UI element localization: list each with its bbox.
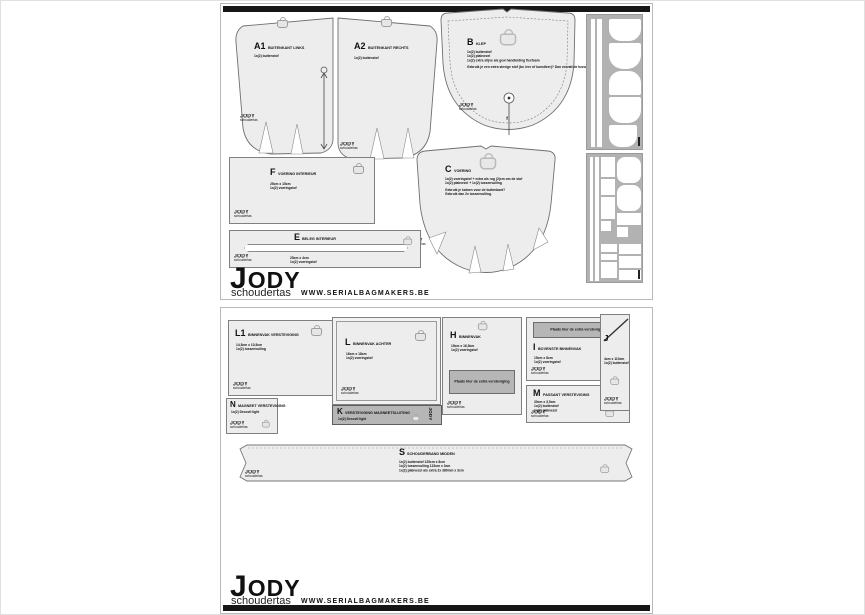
piece-a2-specs: 1x(2) buitenstof — [354, 56, 379, 60]
piece-l: L BINNENVAK ACHTER 16cm x 18cm 1x(2) voe… — [332, 317, 441, 405]
jody-mini-logo: JODY schoudertas — [234, 210, 252, 218]
layout-piece — [601, 244, 617, 252]
piece-a2-name: BUITENKANT RECHTS — [368, 47, 409, 51]
piece-a1-specs: 1x(2) buitenstof — [254, 54, 279, 58]
layout-piece — [601, 197, 615, 219]
jody-logo-sub: schoudertas — [231, 287, 291, 299]
piece-k: K VERSTEVIGING MAGNEETSLUITING 1x(2) Dec… — [332, 405, 442, 425]
layout-caption — [638, 270, 640, 279]
piece-h: H BINNENVAK 15cm x 16,5cm 1x(2) voerings… — [442, 317, 522, 415]
piece-a1-label: A1 BUITENKANT LINKS — [254, 42, 326, 51]
layout-strip — [590, 157, 593, 281]
layout-strip — [595, 157, 599, 281]
piece-c-specs: 1x(2) voeringstof + extra als rug (2)cm … — [445, 177, 522, 197]
layout-piece — [617, 227, 628, 237]
piece-n: N MAGNEET VERSTEVIGING 1x(2) Decovil lig… — [226, 398, 278, 434]
layout-piece — [601, 179, 615, 195]
jody-mini-logo: JODY schoudertas — [245, 470, 263, 478]
piece-l1-code: L1 — [235, 329, 246, 338]
layout-piece — [609, 71, 641, 95]
piece-k-specs: 1x(2) Decovil light — [338, 417, 366, 421]
brand-bag-icon — [500, 29, 520, 47]
piece-e: E BELEG INTERIEUR 25cm x 4cm 1x(2) voeri… — [229, 230, 421, 268]
piece-j-specs: 4cm x 110cm 1x(2) buitenstof — [604, 357, 629, 366]
piece-h-name: BINNENVAK — [459, 336, 481, 340]
piece-k-name: VERSTEVIGING MAGNEETSLUITING — [345, 412, 410, 416]
brand-bag-icon — [610, 376, 620, 386]
piece-n-label: N MAGNEET VERSTEVIGING — [230, 401, 314, 409]
layout-piece — [617, 213, 641, 225]
jody-mini-logo: JODY schoudertas — [341, 387, 359, 395]
piece-s-code: S — [399, 448, 405, 457]
jody-mini-logo: JODY schoudertas — [459, 103, 477, 111]
piece-m-name: PASSANT VERSTEVIGING — [543, 394, 589, 398]
layout-piece — [617, 157, 641, 183]
piece-b-code: B — [467, 38, 474, 47]
brand-bag-icon — [600, 464, 610, 474]
piece-m-code: M — [533, 389, 541, 398]
jody-mini-logo: JODY schoudertas — [604, 397, 622, 405]
jody-mini-logo: JODY schoudertas — [531, 410, 549, 418]
piece-i-code: I — [533, 343, 536, 352]
jody-mini-logo: JODY schoudertas — [234, 254, 252, 262]
piece-j-label: J — [604, 335, 608, 343]
brand-bag-icon — [403, 236, 413, 246]
brand-bag-icon — [381, 16, 394, 28]
layout-piece — [619, 244, 641, 254]
jody-mini-logo: JODY schoudertas — [233, 382, 251, 390]
jody-mini-logo: JODY schoudertas — [230, 421, 248, 429]
brand-bag-icon — [277, 17, 290, 29]
jody-mini-logo: JODY schoudertas — [531, 367, 549, 375]
piece-c-name: VOERING — [454, 170, 471, 174]
cutting-layout-bottom — [586, 153, 643, 283]
piece-i-label: I BOVENSTE BINNENVAK — [533, 343, 607, 352]
layout-piece — [601, 262, 617, 278]
layout-strip — [591, 19, 595, 147]
piece-i-name: BOVENSTE BINNENVAK — [538, 348, 581, 352]
piece-f-name: VOERING INTERIEUR — [278, 173, 316, 177]
jody-vertical-label: JODY — [428, 407, 433, 420]
jody-logo-sub: schoudertas — [231, 595, 291, 607]
reinforcement-zone: Plaats hier de extra versteviging — [449, 370, 515, 394]
piece-k-code: K — [337, 408, 343, 416]
pattern-sheet-1: A1 BUITENKANT LINKS 1x(2) buitenstof JOD… — [220, 3, 653, 300]
piece-f-label: F VOERING INTERIEUR — [270, 168, 339, 177]
website-url: WWW.SERIALBAGMAKERS.BE — [301, 598, 430, 605]
layout-caption — [638, 137, 640, 146]
piece-b-name: KLEP — [476, 43, 486, 47]
piece-c-code: C — [445, 165, 452, 174]
piece-b-notch-label: f — [506, 117, 508, 122]
layout-piece — [601, 254, 617, 260]
piece-h-label: H BINNENVAK — [450, 331, 494, 340]
piece-s-specs: 1x(2) buitenstof 125cm x 8cm 1x(2) tusse… — [399, 460, 464, 473]
brand-bag-icon — [311, 325, 324, 337]
brand-bag-icon — [353, 163, 366, 175]
website-url: WWW.SERIALBAGMAKERS.BE — [301, 290, 430, 297]
piece-s-name: SCHOUDERBAND MIDDEN — [407, 453, 455, 457]
piece-j-code: J — [604, 335, 608, 343]
piece-e-label: E BELEG INTERIEUR — [294, 233, 357, 242]
layout-piece — [609, 43, 641, 69]
piece-n-specs: 1x(2) Decovil light — [231, 410, 259, 414]
piece-a2-code: A2 — [354, 42, 366, 51]
piece-h-code: H — [450, 331, 457, 340]
layout-piece — [609, 125, 637, 147]
brand-bag-icon — [415, 330, 428, 342]
piece-b-label: B KLEP — [467, 38, 492, 47]
piece-l1: L1 BINNENVAK VERSTEVIGING 14,5cm x 10,5c… — [228, 320, 333, 396]
brand-bag-icon — [478, 321, 489, 331]
piece-l-label: L BINNENVAK ACHTER — [345, 338, 414, 347]
brand-bag-icon — [262, 420, 271, 428]
brand-bag-icon — [480, 153, 500, 171]
piece-n-code: N — [230, 401, 236, 409]
cutting-layout-top — [586, 14, 643, 150]
layout-piece — [619, 256, 641, 268]
piece-n-name: MAGNEET VERSTEVIGING — [238, 405, 286, 409]
piece-h-specs: 15cm x 16,5cm 1x(2) voeringstof — [451, 344, 478, 353]
brand-bag-icon — [413, 414, 421, 421]
piece-i-specs: 15cm x 8cm 1x(2) voeringstof — [534, 356, 561, 365]
piece-a1-name: BUITENKANT LINKS — [268, 47, 304, 51]
layout-piece — [609, 19, 641, 41]
jody-mini-logo: JODY schoudertas — [340, 142, 358, 150]
piece-f-specs: 25cm x 15cm 1x(2) voeringstof — [270, 182, 297, 191]
piece-e-name: BELEG INTERIEUR — [302, 238, 336, 242]
pattern-sheet-2: L1 BINNENVAK VERSTEVIGING 14,5cm x 10,5c… — [220, 307, 653, 614]
piece-l1-specs: 14,5cm x 10,5cm 1x(2) tussenvulling — [236, 343, 266, 352]
layout-strip — [597, 19, 602, 147]
piece-l-inner: L BINNENVAK ACHTER 16cm x 18cm 1x(2) voe… — [336, 321, 437, 401]
piece-e-code: E — [294, 233, 300, 242]
piece-l-code: L — [345, 338, 351, 347]
layout-piece — [601, 221, 611, 231]
layout-piece — [601, 157, 615, 177]
piece-c-label: C VOERING — [445, 165, 481, 174]
piece-a2-shape — [336, 12, 440, 162]
length-arrow — [317, 64, 331, 152]
piece-f-code: F — [270, 168, 276, 177]
piece-l-specs: 16cm x 18cm 1x(2) voeringstof — [346, 352, 373, 361]
jody-mini-logo: JODY schoudertas — [240, 114, 258, 122]
piece-s-label: S SCHOUDERBAND MIDDEN — [399, 448, 484, 457]
piece-l-name: BINNENVAK ACHTER — [353, 343, 391, 347]
piece-f: F VOERING INTERIEUR 25cm x 15cm 1x(2) vo… — [229, 157, 375, 224]
piece-a1-code: A1 — [254, 42, 266, 51]
piece-k-label: K VERSTEVIGING MAGNEETSLUITING — [337, 408, 449, 416]
piece-j: J 4cm x 110cm 1x(2) buitenstof JODY scho… — [600, 314, 630, 411]
zipper-slot — [244, 244, 408, 252]
layout-piece — [609, 97, 641, 123]
piece-l1-name: BINNENVAK VERSTEVIGING — [248, 334, 299, 338]
jody-mini-logo: JODY schoudertas — [447, 401, 465, 409]
pattern-scan-page: A1 BUITENKANT LINKS 1x(2) buitenstof JOD… — [0, 0, 865, 615]
piece-a2-label: A2 BUITENKANT RECHTS — [354, 42, 433, 51]
layout-piece — [617, 185, 641, 211]
